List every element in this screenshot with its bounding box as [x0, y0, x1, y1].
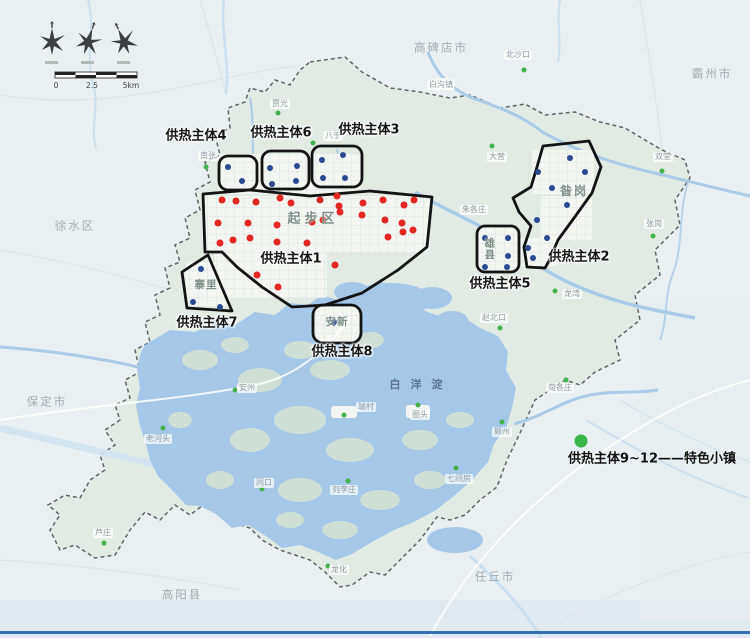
basemap	[0, 0, 750, 638]
map-figure: 白洋淀 0 2.5 5km 供热主体9~12——特色小镇 北沙口白沟镇贾光南张八…	[0, 0, 750, 638]
document-bottom-border	[0, 631, 750, 634]
scale-bar	[55, 72, 137, 78]
